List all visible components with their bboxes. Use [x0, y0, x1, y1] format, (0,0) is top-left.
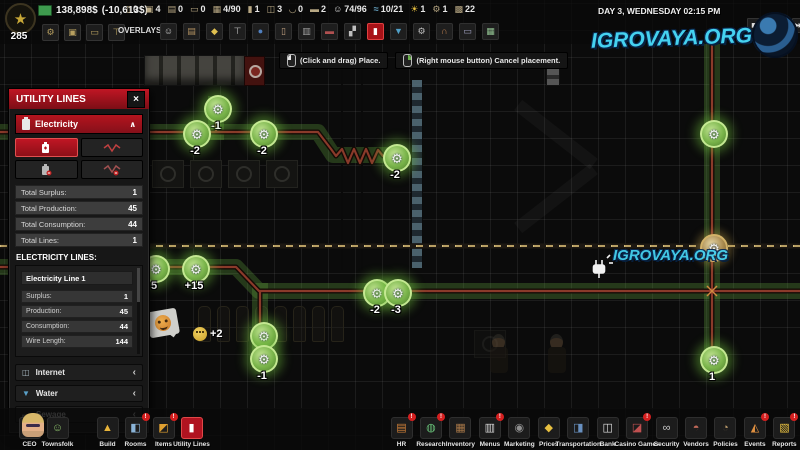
section-icon: [22, 369, 30, 377]
plug-cursor-icon: [590, 254, 614, 280]
utility-icon: [188, 423, 194, 434]
overlay-heat[interactable]: [436, 23, 453, 40]
alert-badge: !: [496, 413, 504, 421]
gear-icon: [708, 354, 720, 367]
node-power-value: -3: [372, 304, 420, 316]
photo-icon: [145, 5, 154, 14]
mouse-icon: [403, 54, 412, 67]
stat-beds: 0: [190, 4, 206, 14]
lamp-icon: [211, 27, 218, 36]
watermark: IGROVAYA.ORG: [613, 247, 728, 264]
stat-row: Total Surplus:1: [15, 185, 143, 199]
section-icon: [22, 390, 30, 398]
toolbar-right: ! HR ! Research ! Inventory ! Menus ! Ma…: [388, 417, 798, 448]
datetime-display: DAY 3, WEDNESDAY 02:15 PM: [598, 6, 748, 16]
tb-policies[interactable]: ! Policies: [712, 417, 739, 448]
townsfolk-icon: [52, 423, 63, 434]
electricity-lines-list[interactable]: Electricity Line 1 Surplus:1 Production:…: [15, 265, 143, 357]
star-badge-icon[interactable]: [5, 3, 36, 34]
node-power-value: -2: [238, 145, 286, 157]
tb-reports[interactable]: ! Reports: [771, 417, 798, 448]
electricity-icon: [373, 27, 378, 36]
stat-cases: 0: [126, 4, 138, 14]
rooms-icon: [130, 423, 140, 434]
chevron-up-icon: ∧: [130, 120, 137, 129]
node-power-value: -2: [171, 145, 219, 157]
panel-title: UTILITY LINES: [16, 94, 127, 105]
tb-rooms[interactable]: ! Rooms: [122, 417, 149, 448]
stat-slots: 4/90: [213, 4, 241, 14]
tb-events[interactable]: ! Events: [741, 417, 768, 448]
tb-marketing[interactable]: ! Marketing: [506, 417, 533, 448]
tb-build[interactable]: ! Build: [94, 417, 121, 448]
tb-townsfolk[interactable]: ! Townsfolk: [44, 417, 71, 448]
gear-icon: [371, 287, 383, 300]
bed-icon: [190, 5, 199, 14]
overlay-furniture[interactable]: [321, 23, 338, 40]
printer-icon: [168, 5, 177, 14]
security-icon: [663, 423, 671, 434]
section-electricity[interactable]: Electricity ∧: [15, 114, 143, 134]
quick-slot-gear[interactable]: [42, 24, 59, 41]
remove-wire-button[interactable]: [81, 160, 144, 179]
overlay-walls[interactable]: [298, 23, 315, 40]
gear-icon: [392, 287, 404, 300]
transportation-icon: [573, 423, 583, 434]
overlay-people[interactable]: [160, 23, 177, 40]
alert-badge: !: [790, 413, 798, 421]
prices-icon: [545, 423, 553, 434]
staff-icon: [333, 5, 342, 14]
stat-row: Total Consumption:44: [15, 217, 143, 231]
camera-icon: [258, 27, 263, 36]
smiley-icon: [154, 314, 173, 333]
electricity-tools: [15, 138, 143, 179]
lines-header: ELECTRICITY LINES:: [16, 253, 143, 262]
overlay-buttons: [160, 23, 499, 40]
toolbar-left: ! CEO ! Townsfolk ! Build ! Rooms ! Item…: [16, 417, 205, 448]
sink-icon: [289, 5, 296, 14]
node-power-value: 1: [688, 371, 736, 383]
marketing-icon: [515, 423, 525, 434]
alert-badge: !: [761, 413, 769, 421]
stat-fridges: 3: [267, 4, 283, 14]
inventory-icon: [455, 423, 465, 434]
utility-lines-panel: UTILITY LINES × Electricity ∧ To: [8, 88, 150, 434]
tb-menus[interactable]: ! Menus: [476, 417, 503, 448]
policies-icon: [722, 423, 729, 434]
level-value: 285: [2, 31, 36, 42]
resource-bar: 0 4 0 0 4/90 1 3 0: [126, 4, 475, 14]
placement-hints: (Click and drag) Place. (Right mouse but…: [279, 52, 568, 69]
bottom-toolbar: ! CEO ! Townsfolk ! Build ! Rooms ! Item…: [0, 408, 800, 450]
tb-utility-lines[interactable]: ! Utility Lines: [178, 417, 205, 448]
stat-printers: 0: [168, 4, 184, 14]
menus-icon: [485, 423, 495, 434]
section-water[interactable]: Water ‹: [15, 385, 143, 402]
overlay-grid[interactable]: [482, 23, 499, 40]
bank-icon: [602, 423, 612, 434]
bottle-icon: [248, 5, 253, 14]
line-stats: Surplus:1 Production:45 Consumption:44 W…: [21, 290, 133, 348]
hr-icon: [396, 423, 406, 434]
grid-icon: [486, 27, 495, 36]
casino-icon: [632, 423, 642, 434]
stat-row: Total Lines:1: [15, 233, 143, 247]
stat-sinks: 0: [289, 4, 303, 14]
tb-transportation[interactable]: ! Transportation: [565, 417, 592, 448]
stat-water: 10/21: [374, 4, 403, 14]
quick-slot-flag[interactable]: [64, 24, 81, 41]
items-icon: [158, 423, 168, 434]
add-power-button[interactable]: [15, 138, 78, 157]
gear-icon: [258, 128, 270, 141]
hint-cancel: (Right mouse button) Cancel placement.: [395, 52, 568, 69]
tools-icon: [234, 27, 242, 36]
gear-icon: [150, 263, 162, 276]
emoji-icon: [193, 327, 207, 341]
remove-power-button[interactable]: [15, 160, 78, 179]
gear-icon: [258, 353, 270, 366]
quick-slots: [42, 24, 125, 41]
wall-icon: [302, 27, 311, 36]
section-internet[interactable]: Internet ‹: [15, 364, 143, 381]
happiness-emote: +2: [193, 327, 223, 341]
money-amount: 138,898$: [56, 5, 98, 16]
gear-icon: [708, 128, 720, 141]
tavern-icon: [187, 27, 196, 36]
events-icon: [751, 423, 759, 434]
furniture-icon: [463, 27, 472, 36]
slots-icon: [213, 5, 222, 14]
hint-place: (Click and drag) Place.: [279, 52, 388, 69]
overlay-camera[interactable]: [252, 23, 269, 40]
overlays-label: OVERLAYS:: [118, 26, 164, 35]
overlay-machines[interactable]: [413, 23, 430, 40]
overlay-doors[interactable]: [275, 23, 292, 40]
stat-desks: 2: [310, 4, 326, 14]
stat-gears: 1: [432, 4, 447, 14]
alert-badge: !: [643, 413, 651, 421]
node-power-value: +15: [170, 280, 218, 292]
overlay-tools[interactable]: [344, 23, 361, 40]
stat-crates: 22: [454, 4, 475, 14]
stat-row: Total Production:45: [15, 201, 143, 215]
gear-icon: [191, 128, 203, 141]
research-icon: [426, 423, 436, 434]
tb-casino-games[interactable]: ! Casino Games: [624, 417, 651, 448]
quick-slot-furniture[interactable]: [86, 24, 103, 41]
stat-row: Surplus:1: [21, 290, 133, 303]
chevron-left-icon: ‹: [133, 388, 136, 399]
overlay-water[interactable]: [390, 23, 407, 40]
door-icon: [281, 27, 286, 36]
thought-bubble: [146, 308, 180, 339]
close-icon[interactable]: ×: [127, 91, 145, 108]
stat-row: Wire Length:144: [21, 335, 133, 348]
overlay-building[interactable]: [183, 23, 200, 40]
alert-badge: !: [142, 413, 150, 421]
node-power-value: -2: [371, 169, 419, 181]
overlay-electricity[interactable]: [367, 23, 384, 40]
node-power-value: -1: [238, 370, 286, 382]
alert-badge: !: [437, 413, 445, 421]
stat-day: 1: [410, 4, 425, 14]
stat-pictures: 4: [145, 4, 161, 14]
crate-icon: [454, 5, 463, 14]
waterov-icon: [394, 27, 403, 36]
gear-icon: [190, 263, 202, 276]
tb-research[interactable]: ! Research: [417, 417, 444, 448]
heat-icon: [441, 27, 447, 36]
stat-row: Consumption:44: [21, 320, 133, 333]
fridge-icon: [267, 5, 276, 14]
stat-staff: 74/96: [333, 4, 367, 14]
vendors-icon: [693, 423, 700, 434]
add-wire-button[interactable]: [81, 138, 144, 157]
gear-icon: [212, 103, 224, 116]
stat-row: Production:45: [21, 305, 133, 318]
sun-icon: [410, 5, 418, 14]
tb-security[interactable]: ! Security: [653, 417, 680, 448]
watermark-globe: [752, 12, 798, 58]
panel-header[interactable]: UTILITY LINES ×: [9, 89, 149, 109]
overlay-items[interactable]: [459, 23, 476, 40]
ceo-icon: [20, 413, 40, 443]
knife-icon: [349, 27, 356, 36]
gear-icon: [391, 152, 403, 165]
battery-icon: [22, 119, 30, 130]
electricity-totals: Total Surplus:1 Total Production:45 Tota…: [15, 185, 143, 247]
overlay-light[interactable]: [206, 23, 223, 40]
gear-icon: [432, 5, 440, 14]
emote-value: +2: [210, 328, 223, 340]
desk2-icon: [310, 5, 319, 14]
chevron-left-icon: ‹: [133, 367, 136, 378]
stat-bottles: 1: [248, 4, 260, 14]
case-icon: [126, 5, 131, 14]
build-icon: [102, 423, 113, 434]
line-name[interactable]: Electricity Line 1: [21, 271, 133, 285]
reports-icon: [779, 423, 789, 434]
alert-badge: !: [408, 413, 416, 421]
mouse-icon: [287, 54, 296, 67]
gear-icon: [258, 330, 270, 343]
tb-ceo[interactable]: ! CEO: [16, 417, 43, 448]
cash-icon: [38, 5, 52, 16]
overlay-construction[interactable]: [229, 23, 246, 40]
tb-inventory[interactable]: ! Inventory: [447, 417, 474, 448]
tb-vendors[interactable]: ! Vendors: [683, 417, 710, 448]
deskov-icon: [325, 27, 334, 36]
water2-icon: [374, 5, 379, 14]
alert-badge: !: [170, 413, 178, 421]
gear2-icon: [417, 27, 425, 36]
person-icon: [164, 27, 173, 36]
tb-hr[interactable]: ! HR: [388, 417, 415, 448]
